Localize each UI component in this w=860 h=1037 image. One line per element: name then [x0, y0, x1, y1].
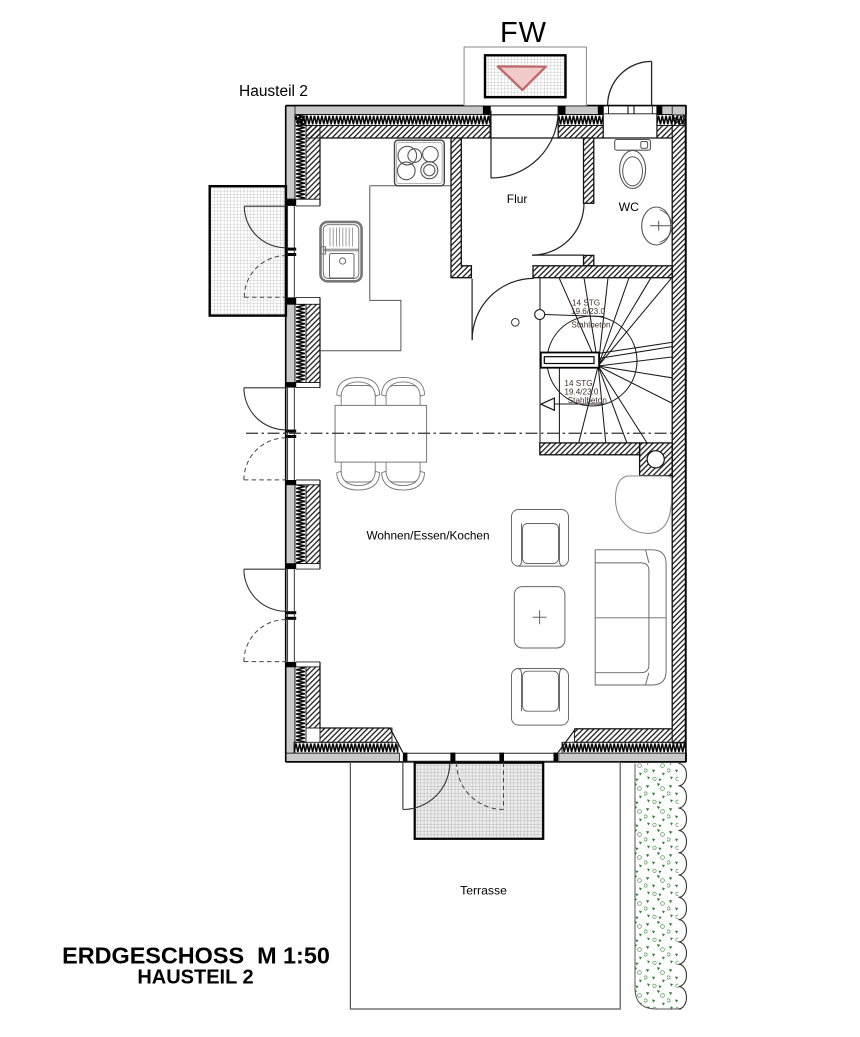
svg-text:ERDGESCHOSS M 1:50: ERDGESCHOSS M 1:50	[62, 943, 330, 969]
svg-text:WC: WC	[619, 200, 640, 214]
svg-text:14 STG: 14 STG	[572, 299, 600, 308]
svg-text:HAUSTEIL 2: HAUSTEIL 2	[137, 967, 253, 989]
svg-text:Terrasse: Terrasse	[460, 884, 507, 898]
svg-text:Wohnen/Essen/Kochen: Wohnen/Essen/Kochen	[366, 529, 489, 543]
svg-text:FW: FW	[500, 17, 547, 49]
svg-text:19.6/23.0: 19.6/23.0	[571, 307, 606, 316]
svg-text:Stahlbeton: Stahlbeton	[568, 396, 608, 405]
svg-text:Stahlbeton: Stahlbeton	[571, 320, 611, 329]
svg-text:Hausteil 2: Hausteil 2	[239, 83, 308, 100]
svg-text:19.4/23.0: 19.4/23.0	[564, 387, 599, 396]
svg-text:Flur: Flur	[507, 192, 528, 206]
